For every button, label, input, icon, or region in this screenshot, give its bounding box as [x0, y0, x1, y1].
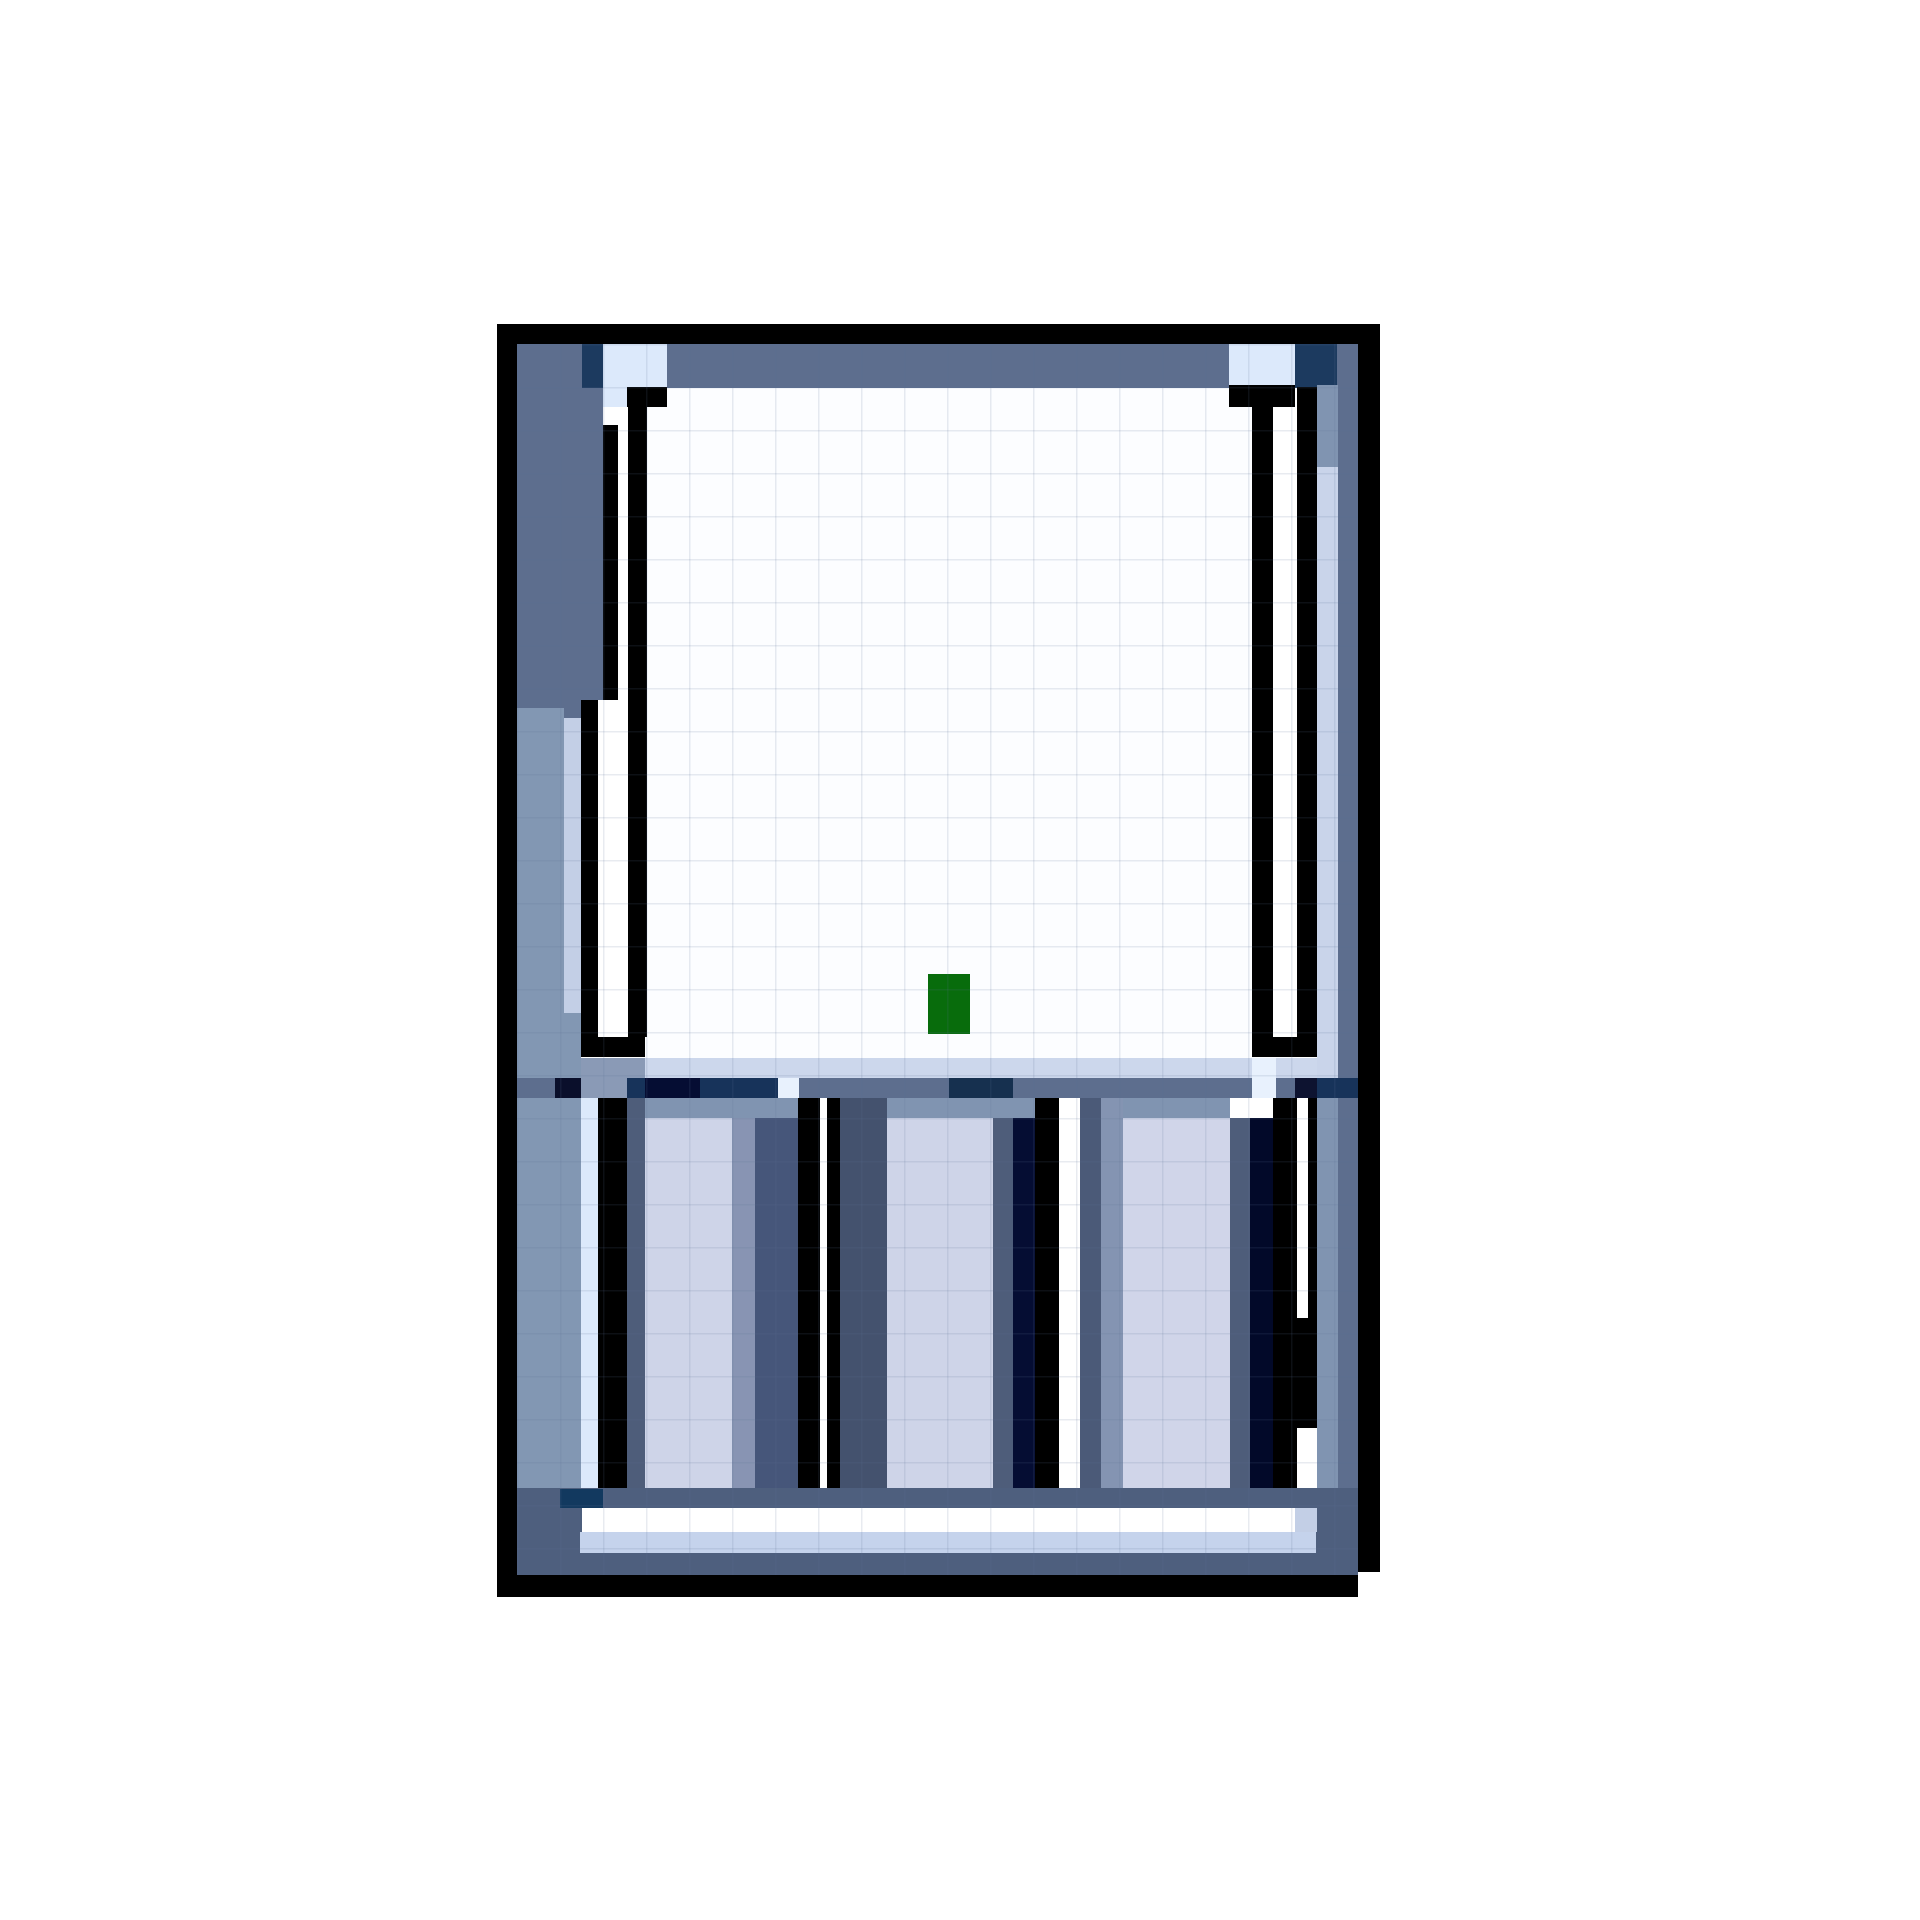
grid-line-vertical — [904, 344, 906, 1575]
grid-line-vertical — [775, 344, 777, 1575]
pixel-block — [564, 388, 581, 718]
outer-border-right — [1358, 324, 1380, 1572]
grid-line-horizontal — [517, 1505, 1358, 1507]
pixel-block — [1252, 1078, 1276, 1098]
pixel-block — [820, 1098, 827, 1488]
slot1-line-left — [598, 1098, 627, 1488]
pixel-block — [1308, 1098, 1317, 1318]
pixel-block — [603, 425, 618, 700]
pixel-block — [887, 1098, 993, 1118]
pixel-block — [732, 1118, 755, 1488]
grid-line-horizontal — [517, 1118, 1358, 1120]
pixel-block — [1317, 1078, 1358, 1098]
pixel-block — [598, 700, 628, 1037]
pixel-block — [993, 1118, 1013, 1488]
grid-line-vertical — [646, 344, 648, 1575]
grid-line-horizontal — [517, 473, 1358, 475]
slot3-body — [1123, 1118, 1230, 1488]
slot1-body — [645, 1118, 732, 1488]
grid-line-vertical — [560, 344, 562, 1575]
grid-line-horizontal — [517, 344, 1358, 346]
pixel-block — [581, 700, 598, 1037]
pixel-block — [1230, 1118, 1250, 1488]
pixel-block — [1250, 1118, 1273, 1488]
grid-line-vertical — [861, 344, 863, 1575]
battery-charger-sprite — [0, 0, 1920, 1920]
grid-line-horizontal — [517, 602, 1358, 604]
grid-line-horizontal — [517, 1419, 1358, 1421]
pixel-block — [581, 388, 603, 700]
grid-line-horizontal — [517, 430, 1358, 432]
slot2-line-right — [1035, 1098, 1059, 1488]
pixel-block — [1013, 1118, 1035, 1488]
grid-line-horizontal — [517, 817, 1358, 819]
grid-line-vertical — [1076, 344, 1078, 1575]
pixel-block — [1123, 1098, 1230, 1118]
grid-line-vertical — [732, 344, 734, 1575]
right-frame-column — [1338, 388, 1358, 1553]
grid-line-horizontal — [517, 860, 1358, 862]
led-indicator — [928, 974, 970, 1034]
grid-line-vertical — [603, 344, 605, 1575]
slot1-left-highlight — [581, 1098, 598, 1488]
pixel-block — [1252, 407, 1273, 1037]
grid-line-horizontal — [517, 1247, 1358, 1249]
grid-line-horizontal — [517, 1548, 1358, 1550]
grid-line-vertical — [1033, 344, 1035, 1575]
slot2-body — [887, 1118, 993, 1488]
grid-line-vertical — [1162, 344, 1164, 1575]
grid-line-vertical — [818, 344, 820, 1575]
pixel-block — [645, 1078, 700, 1098]
pixel-block — [627, 1098, 645, 1508]
pixel-block — [840, 1098, 887, 1508]
grid-line-horizontal — [517, 946, 1358, 948]
grid-line-horizontal — [517, 645, 1358, 647]
grid-line-horizontal — [517, 1161, 1358, 1163]
grid-line-horizontal — [517, 1204, 1358, 1206]
pixel-block — [778, 1078, 799, 1098]
grid-line-vertical — [947, 344, 949, 1575]
grid-line-horizontal — [517, 1290, 1358, 1292]
pixel-block — [1080, 1098, 1101, 1508]
pixel-block — [700, 1078, 778, 1098]
grid-line-vertical — [1291, 344, 1293, 1575]
base-white-strip — [582, 1508, 1317, 1532]
grid-line-vertical — [689, 344, 691, 1575]
slot3-line-right — [1273, 1098, 1297, 1510]
grid-line-horizontal — [517, 688, 1358, 690]
pixel-block — [603, 388, 627, 407]
left-frame-column-upper — [517, 388, 564, 708]
grid-line-horizontal — [517, 559, 1358, 561]
grid-line-horizontal — [517, 731, 1358, 733]
grid-line-horizontal — [517, 1032, 1358, 1034]
top-band-navy-right — [1295, 344, 1337, 388]
pixel-block — [1297, 1098, 1308, 1318]
pixel-block — [1295, 1508, 1317, 1532]
right-frame-cap-bottom — [1252, 1037, 1317, 1057]
top-band-highlight-right — [1229, 344, 1295, 388]
top-band-navy-left — [582, 344, 603, 388]
pixel-block — [993, 1098, 1035, 1118]
grid-line-vertical — [1205, 344, 1207, 1575]
pixel-block — [555, 1078, 581, 1098]
grid-line-horizontal — [517, 1075, 1358, 1077]
grid-line-horizontal — [517, 1333, 1358, 1335]
grid-line-horizontal — [517, 774, 1358, 776]
left-inner-highlight-column — [564, 718, 581, 1013]
outer-border-top — [497, 324, 1380, 344]
pixel-block — [618, 407, 628, 700]
grid-line-horizontal — [517, 387, 1358, 389]
grid-line-horizontal — [517, 516, 1358, 518]
pixel-block — [627, 1078, 645, 1098]
grid-line-vertical — [517, 344, 519, 1575]
pixel-block — [949, 1078, 1013, 1098]
outer-border-left — [497, 324, 517, 1597]
pixel-block — [1273, 407, 1297, 1037]
slot2-line-left — [827, 1098, 840, 1488]
pixel-block — [1295, 1078, 1317, 1098]
grid-line-vertical — [1248, 344, 1250, 1575]
grid-line-vertical — [990, 344, 992, 1575]
outer-border-bottom — [497, 1575, 1358, 1597]
slot1-line-right — [798, 1098, 820, 1488]
grid-line-horizontal — [517, 1376, 1358, 1378]
grid-line-horizontal — [517, 1462, 1358, 1464]
right-frame-line — [1297, 387, 1317, 1037]
left-frame-line — [628, 387, 647, 1037]
grid-line-vertical — [1119, 344, 1121, 1575]
screen-window — [645, 388, 1297, 1058]
grid-line-horizontal — [517, 903, 1358, 905]
left-frame-cap-bottom — [581, 1037, 645, 1057]
artboard — [0, 0, 1920, 1920]
grid-line-horizontal — [517, 989, 1358, 991]
grid-line-vertical — [1334, 344, 1336, 1575]
top-band-highlight-left — [603, 344, 667, 388]
